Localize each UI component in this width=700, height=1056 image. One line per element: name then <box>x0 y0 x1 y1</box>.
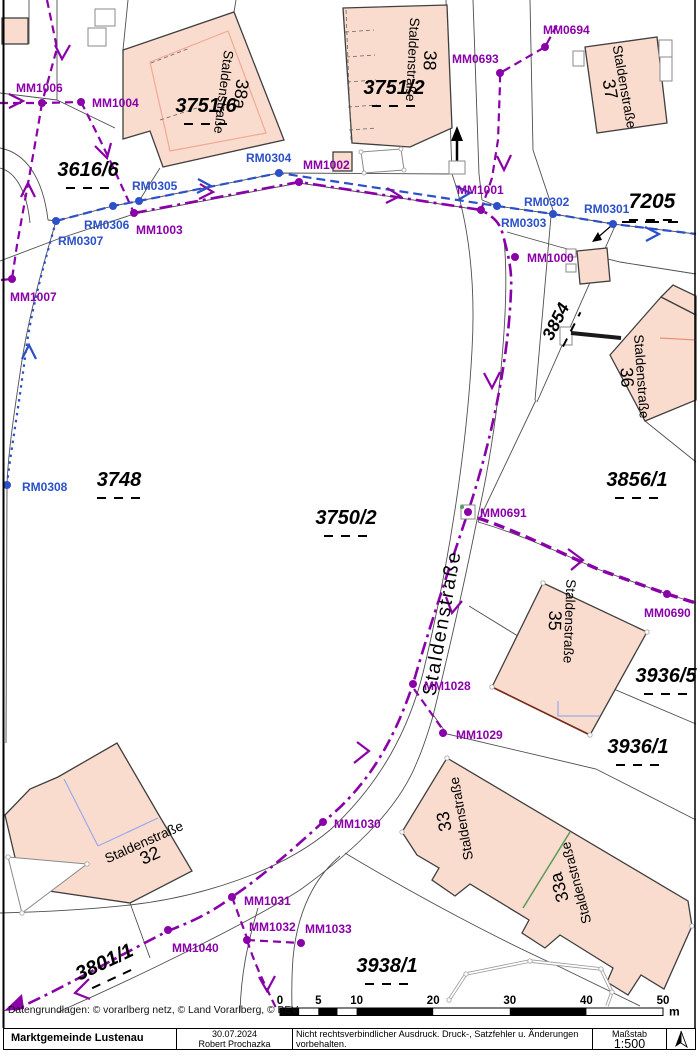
svg-text:RM0302: RM0302 <box>524 195 570 209</box>
parcel-label-7205: 7205 <box>629 190 676 220</box>
scalebar: 051020304050m <box>277 995 680 1019</box>
rm-point-marker <box>609 220 617 228</box>
svg-text:RM0304: RM0304 <box>246 151 292 165</box>
survey-point-MM1030: MM1030 <box>319 817 381 831</box>
svg-text:MM1030: MM1030 <box>334 817 381 831</box>
svg-text:MM1032: MM1032 <box>249 920 296 934</box>
svg-text:RM0306: RM0306 <box>84 218 130 232</box>
svg-text:3616/6: 3616/6 <box>57 159 119 181</box>
svg-text:36: 36 <box>616 367 637 388</box>
scalebar-tick-40: 40 <box>580 995 593 1007</box>
svg-text:37: 37 <box>599 78 622 101</box>
mm-point-marker <box>541 43 549 51</box>
rm-point-marker <box>493 202 501 210</box>
svg-text:MM1003: MM1003 <box>136 223 183 237</box>
parcel-label-3854: 3854 <box>538 299 581 347</box>
building-small-topleft <box>2 18 28 44</box>
rm-point-marker <box>52 217 60 225</box>
svg-text:MM0691: MM0691 <box>480 506 527 520</box>
parcel-label-3748: 3748 <box>97 469 142 498</box>
survey-point-MM0693: MM0693 <box>452 52 504 77</box>
mm-point-marker <box>464 508 472 516</box>
scalebar-tick-10: 10 <box>350 995 363 1007</box>
building-38 <box>343 5 452 147</box>
street-name-label: Staldenstraße <box>418 548 465 697</box>
mm-point-marker <box>243 936 251 944</box>
svg-text:MM1040: MM1040 <box>172 941 219 955</box>
svg-text:3938/1: 3938/1 <box>356 955 417 977</box>
survey-point-RM0306: RM0306 <box>84 202 130 232</box>
attribution-text: Datengrundlagen: © vorarlberg netz, © La… <box>8 1005 298 1016</box>
building-36 <box>610 297 696 421</box>
survey-point-MM1002: MM1002 <box>295 158 350 186</box>
svg-text:Staldenstraße: Staldenstraße <box>418 548 465 697</box>
rm-point-marker <box>275 169 283 177</box>
cadastral-map-page: 3751/63751/23616/67205385437483750/23856… <box>0 0 700 1056</box>
svg-text:38: 38 <box>419 50 440 71</box>
footer-disclaimer: Nicht rechtsverbindlicher Ausdruck. Druc… <box>293 1029 593 1049</box>
parcel-label-3801-1: 3801/1 <box>72 940 140 992</box>
svg-text:RM0305: RM0305 <box>132 179 178 193</box>
mm-point-marker <box>38 99 46 107</box>
svg-text:RM0307: RM0307 <box>58 234 104 248</box>
building-38a <box>123 12 284 167</box>
svg-text:7205: 7205 <box>629 190 676 213</box>
survey-point-MM1007: MM1007 <box>8 275 57 304</box>
map-canvas: 3751/63751/23616/67205385437483750/23856… <box>0 0 700 1056</box>
mm-point-marker <box>164 926 172 934</box>
scalebar-unit: m <box>669 1005 680 1019</box>
survey-point-RM0305: RM0305 <box>132 179 178 205</box>
footer-date-author: 30.07.2024 Robert Prochazka <box>177 1029 293 1049</box>
mm-point-marker <box>130 209 138 217</box>
svg-text:MM0690: MM0690 <box>644 606 691 620</box>
footer-north <box>667 1029 694 1049</box>
mm-point-marker <box>511 253 519 261</box>
svg-text:3936/5: 3936/5 <box>635 665 697 687</box>
survey-point-MM0690: MM0690 <box>644 590 691 620</box>
parcel-label-3856-1: 3856/1 <box>606 469 667 498</box>
mm-point-marker <box>228 893 236 901</box>
mm-point-marker <box>663 590 671 598</box>
svg-text:3750/2: 3750/2 <box>315 507 376 529</box>
mm-point-marker <box>477 206 485 214</box>
scale-value: 1:500 <box>593 1039 666 1049</box>
svg-text:MM1004: MM1004 <box>92 96 139 110</box>
footer-author: Robert Prochazka <box>177 1040 292 1050</box>
mm-point-marker <box>8 275 16 283</box>
scalebar-tick-30: 30 <box>503 995 516 1007</box>
north-arrow-icon <box>671 1030 691 1049</box>
survey-point-MM0694: MM0694 <box>541 23 590 51</box>
svg-text:3748: 3748 <box>97 469 142 491</box>
mm-point-marker <box>319 818 327 826</box>
survey-point-MM1000: MM1000 <box>511 251 574 265</box>
svg-text:3856/1: 3856/1 <box>606 469 667 491</box>
building-mm1000 <box>577 248 610 284</box>
survey-point-RM0308: RM0308 <box>3 480 68 494</box>
survey-point-MM1033: MM1033 <box>297 922 352 947</box>
rm-point-marker <box>549 210 557 218</box>
svg-text:MM1029: MM1029 <box>456 728 503 742</box>
survey-point-MM1032: MM1032 <box>243 920 296 944</box>
svg-text:3801/1: 3801/1 <box>72 940 137 986</box>
parcel-label-3938-1: 3938/1 <box>356 955 417 984</box>
footer-bar: Marktgemeinde Lustenau 30.07.2024 Robert… <box>3 1028 696 1050</box>
survey-point-RM0302: RM0302 <box>524 195 570 218</box>
survey-point-MM1003: MM1003 <box>130 209 183 237</box>
mm-point-marker <box>439 729 447 737</box>
mm-point-marker <box>295 178 303 186</box>
scalebar-tick-20: 20 <box>427 995 440 1007</box>
svg-text:MM1007: MM1007 <box>10 290 57 304</box>
rm-point-marker <box>135 197 143 205</box>
mm-point-marker <box>297 939 305 947</box>
scalebar-tick-50: 50 <box>657 995 670 1007</box>
parcel-label-3936-5: 3936/5 <box>635 665 697 694</box>
svg-text:RM0301: RM0301 <box>584 202 630 216</box>
mm-point-marker <box>77 98 85 106</box>
svg-text:MM1001: MM1001 <box>457 183 504 197</box>
street-name-layer: Staldenstraße <box>418 548 465 697</box>
svg-text:RM0303: RM0303 <box>501 216 547 230</box>
parcel-label-3936-1: 3936/1 <box>607 736 668 765</box>
parcel-label-3616-6: 3616/6 <box>57 159 119 188</box>
scalebar-tick-5: 5 <box>315 995 322 1007</box>
svg-text:MM1000: MM1000 <box>527 251 574 265</box>
footer-municipality: Marktgemeinde Lustenau <box>4 1029 177 1049</box>
disclaimer-line1: Nicht rechtsverbindlicher Ausdruck. Druc… <box>296 1030 589 1049</box>
svg-text:MM0694: MM0694 <box>543 23 590 37</box>
survey-point-MM1004: MM1004 <box>77 96 139 110</box>
svg-text:MM0693: MM0693 <box>452 52 499 66</box>
parcel-label-3750-2: 3750/2 <box>315 507 376 536</box>
survey-point-MM1029: MM1029 <box>439 728 503 742</box>
svg-text:MM1006: MM1006 <box>16 81 63 95</box>
svg-text:MM1028: MM1028 <box>424 679 471 693</box>
footer-scale: Maßstab 1:500 <box>593 1029 667 1049</box>
svg-text:3936/1: 3936/1 <box>607 736 668 758</box>
survey-point-MM1031: MM1031 <box>228 893 291 908</box>
svg-text:MM1002: MM1002 <box>303 158 350 172</box>
svg-text:MM1033: MM1033 <box>305 922 352 936</box>
mm-point-marker <box>409 680 417 688</box>
svg-text:MM1031: MM1031 <box>244 894 291 908</box>
rm-point-marker <box>109 202 117 210</box>
survey-point-MM0691: MM0691 <box>460 505 527 520</box>
svg-text:RM0308: RM0308 <box>22 480 68 494</box>
mm-point-marker <box>496 69 504 77</box>
svg-text:35: 35 <box>545 610 566 631</box>
